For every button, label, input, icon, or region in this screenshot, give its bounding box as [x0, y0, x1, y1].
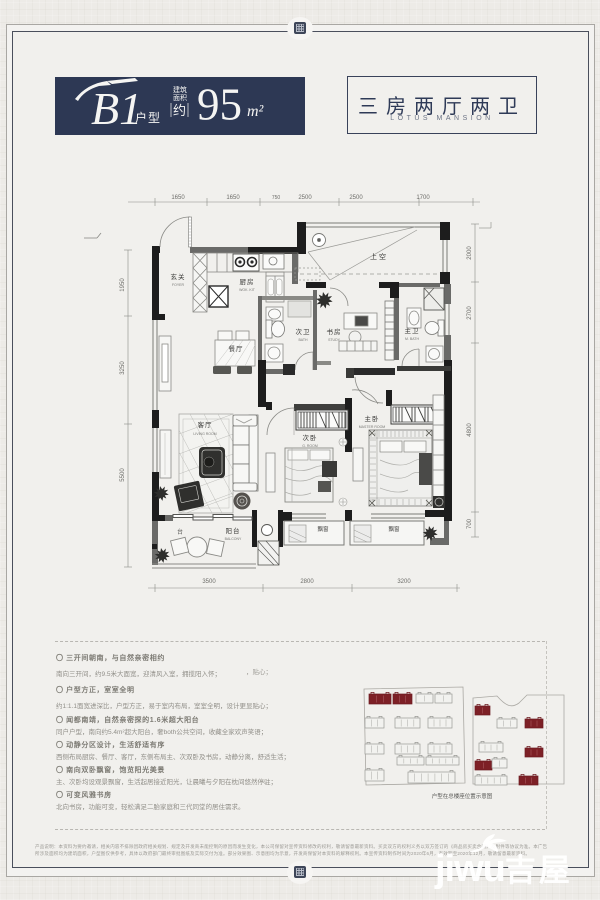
svg-text:户型在总楼座位置示意图: 户型在总楼座位置示意图 — [432, 792, 493, 800]
